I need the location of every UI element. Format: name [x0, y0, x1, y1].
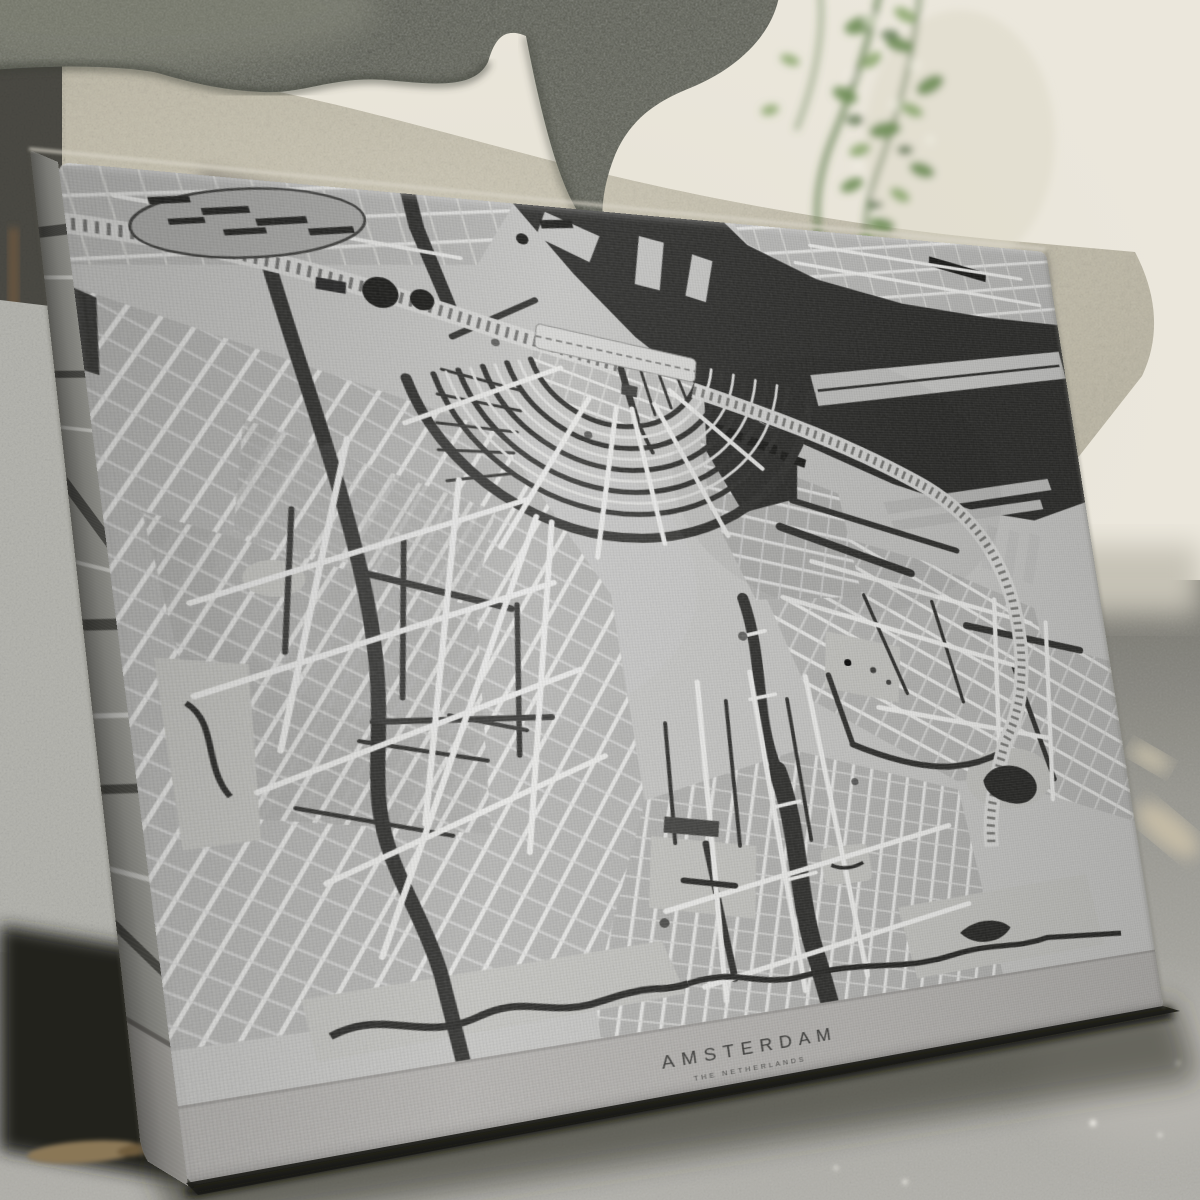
product-photo-scene: AMSTERDAM THE NETHERLANDS: [0, 0, 1200, 1200]
amsterdam-map-artwork: [58, 162, 1164, 1186]
canvas-print: AMSTERDAM THE NETHERLANDS: [58, 162, 1164, 1186]
